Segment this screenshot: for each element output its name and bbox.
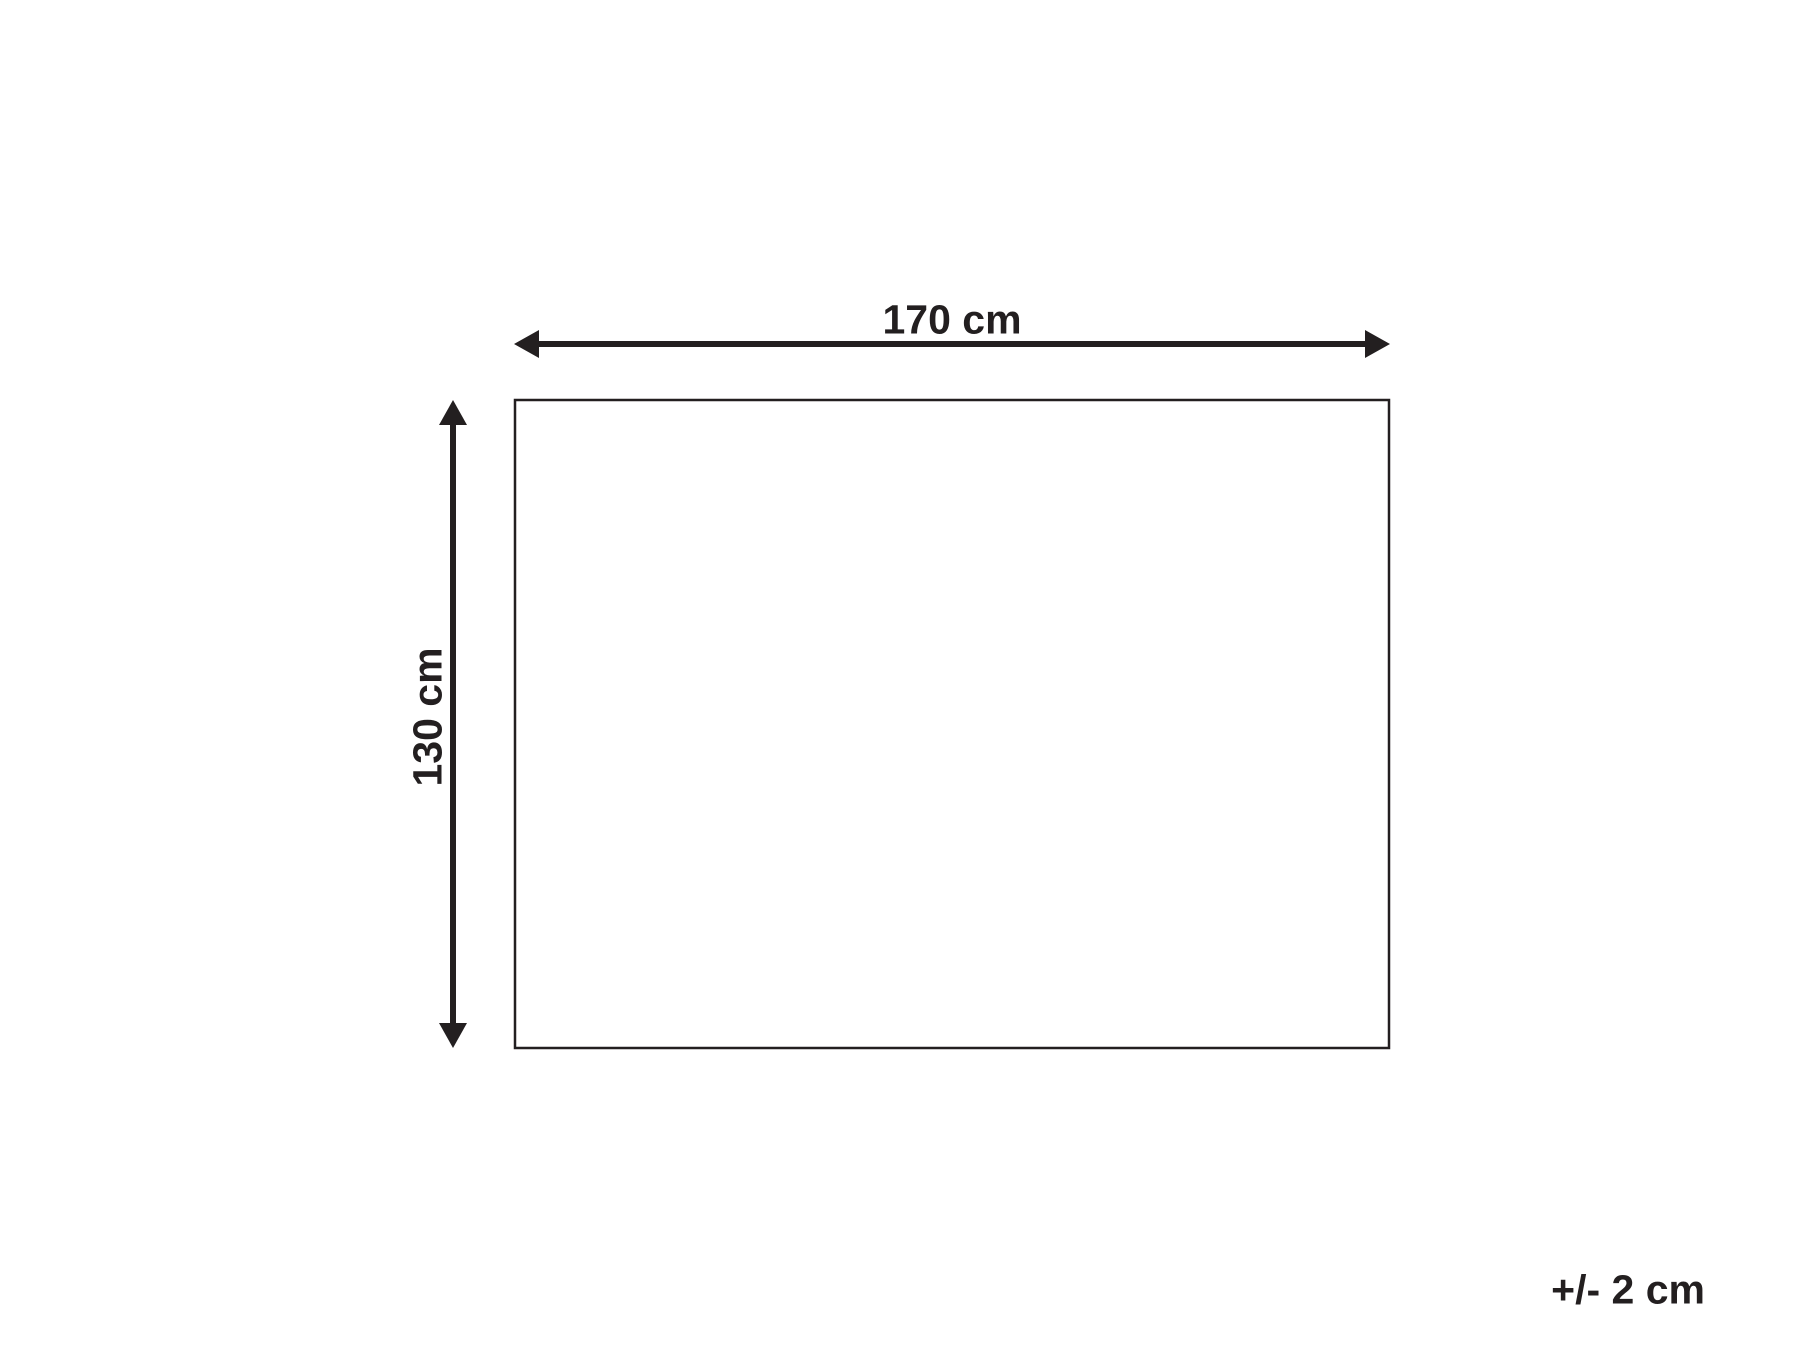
height-dimension-label: 130 cm [408, 647, 449, 786]
dimension-diagram: 170 cm 130 cm +/- 2 cm [0, 0, 1799, 1349]
width-arrow-left-head-icon [514, 330, 539, 358]
width-arrow-right-head-icon [1365, 330, 1390, 358]
height-arrow-top-head-icon [439, 400, 467, 425]
product-outline-rectangle [515, 400, 1389, 1048]
width-dimension-label: 170 cm [882, 300, 1021, 341]
height-arrow-bottom-head-icon [439, 1023, 467, 1048]
tolerance-label: +/- 2 cm [1551, 1270, 1705, 1311]
diagram-shapes [0, 0, 1799, 1349]
